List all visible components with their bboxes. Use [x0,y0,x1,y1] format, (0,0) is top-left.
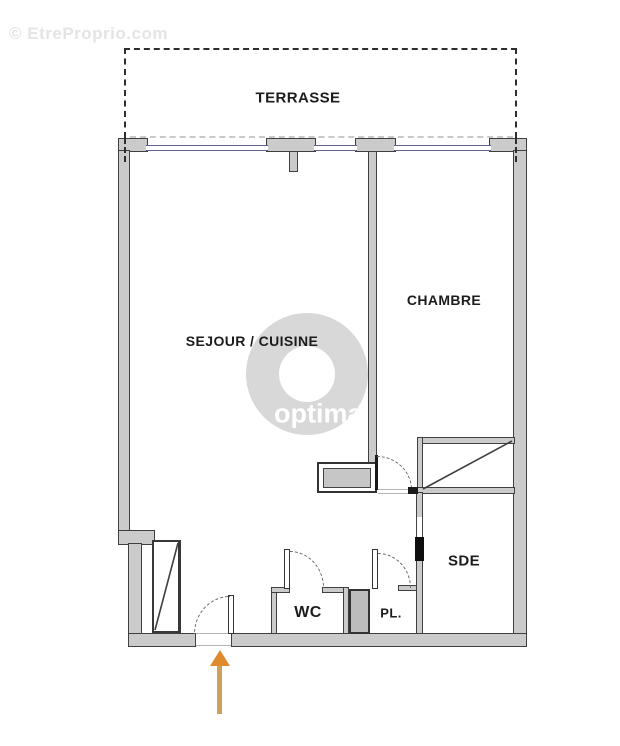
terrace-boundary-left-extension [124,138,126,162]
room-label-wc: WC [294,604,321,622]
entrance-arrow-shaft [217,663,222,714]
room-label-terrace: TERRASSE [256,90,341,107]
terrace-boundary-right-extension [515,138,517,162]
room-label-closet: PL. [380,606,401,621]
floor-plan: © EtreProprio.com optimal [0,0,620,746]
bedroom-door-stop [408,487,418,494]
room-label-bedroom: CHAMBRE [407,292,481,308]
entrance-arrow-head [210,650,230,666]
sde-sliding-door [415,537,424,561]
room-label-shower-room: SDE [448,553,480,570]
room-label-living: SEJOUR / CUISINE [186,333,318,349]
closet-diagonal-lines [0,0,620,746]
